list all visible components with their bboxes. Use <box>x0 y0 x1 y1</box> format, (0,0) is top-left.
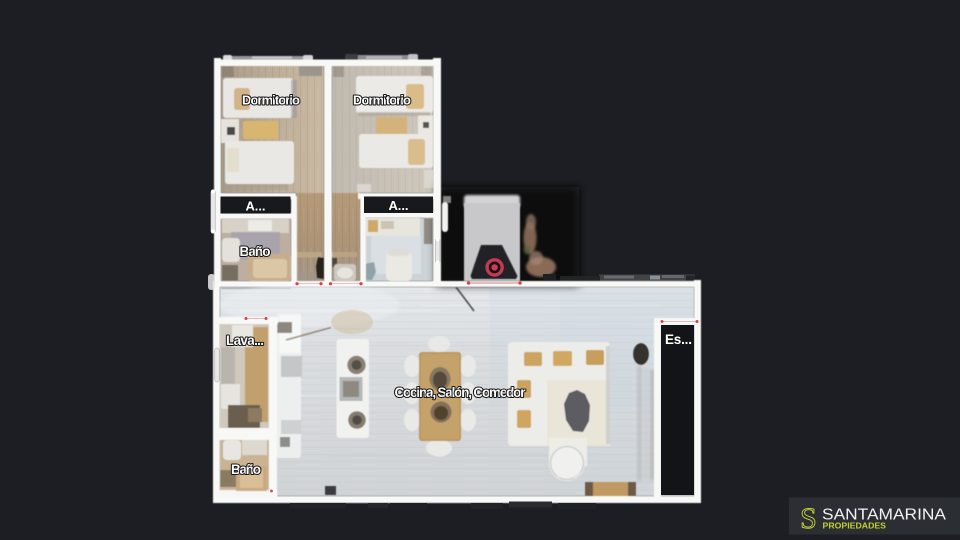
svg-text:Lava...: Lava... <box>226 333 264 348</box>
svg-text:Baño: Baño <box>231 462 261 477</box>
svg-text:Es...: Es... <box>665 332 692 347</box>
svg-text:PROPIEDADES: PROPIEDADES <box>823 521 887 531</box>
svg-text:A...: A... <box>246 199 266 214</box>
svg-text:S: S <box>800 502 817 535</box>
svg-text:Dormitorio: Dormitorio <box>353 93 411 108</box>
svg-text:Baño: Baño <box>240 244 271 259</box>
svg-text:Dormitorio: Dormitorio <box>242 93 300 108</box>
svg-text:A...: A... <box>389 198 409 213</box>
svg-text:Cocina, Salón, Comedor: Cocina, Salón, Comedor <box>395 385 527 400</box>
